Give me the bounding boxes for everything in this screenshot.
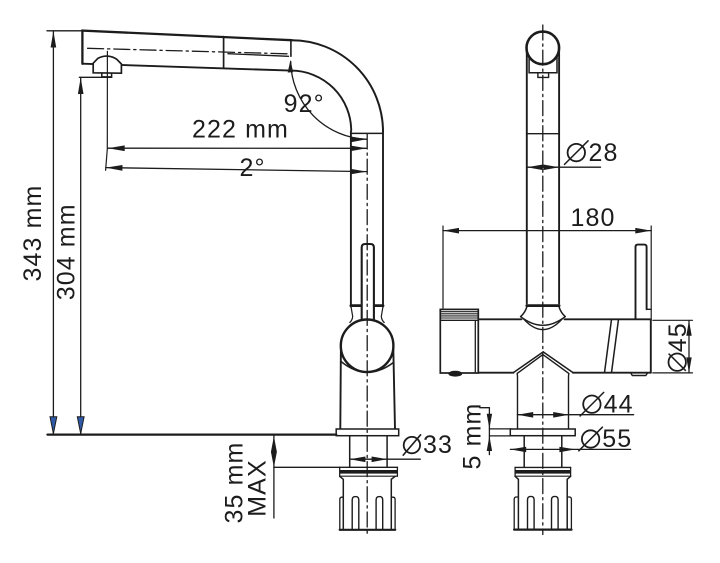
svg-text:222 mm: 222 mm <box>192 116 289 144</box>
svg-text:55: 55 <box>602 425 632 453</box>
svg-text:2°: 2° <box>240 154 266 182</box>
svg-text:343 mm: 343 mm <box>19 185 47 282</box>
svg-text:33: 33 <box>423 431 453 459</box>
svg-text:45: 45 <box>664 322 692 352</box>
svg-text:180: 180 <box>570 204 615 232</box>
svg-text:5 mm: 5 mm <box>459 403 487 470</box>
svg-text:MAX: MAX <box>244 459 272 516</box>
svg-text:92°: 92° <box>284 90 325 118</box>
svg-text:304 mm: 304 mm <box>53 203 81 300</box>
svg-text:28: 28 <box>589 139 619 167</box>
svg-text:44: 44 <box>604 390 634 418</box>
